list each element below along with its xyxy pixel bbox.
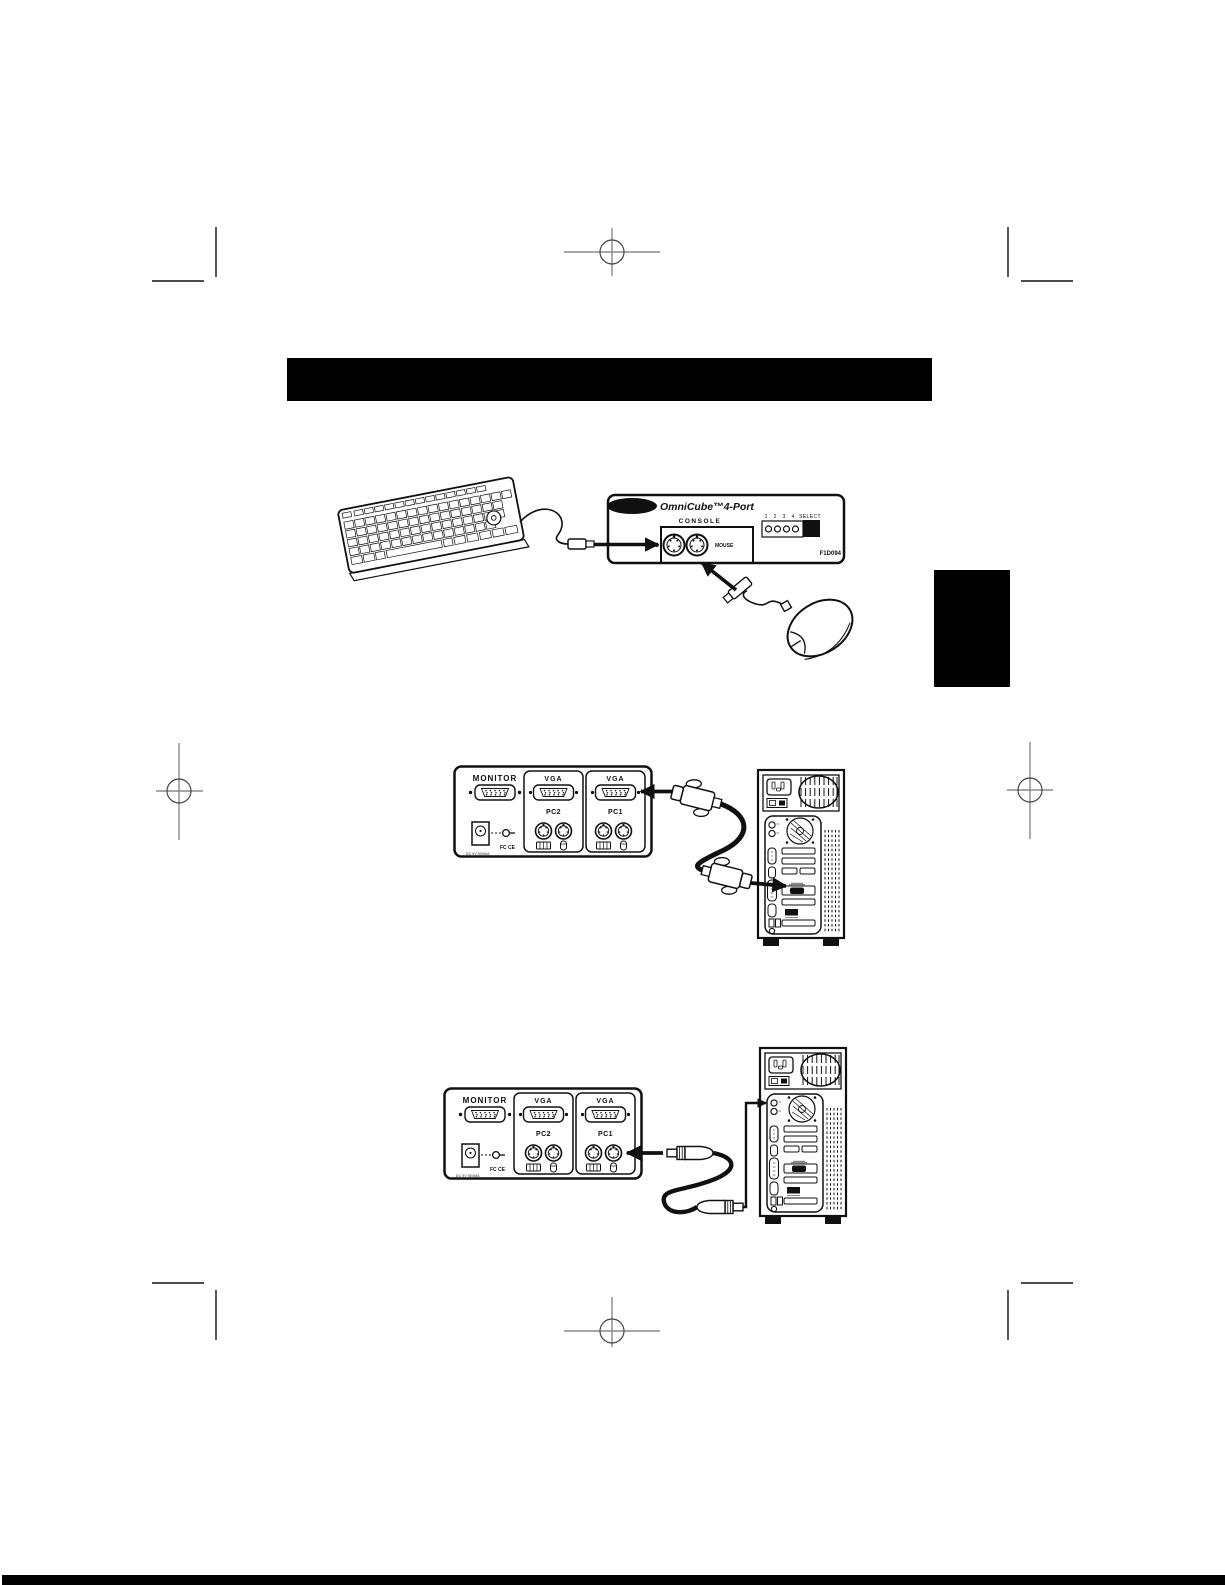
registration-target-left <box>156 743 203 840</box>
model-number: F1D094 <box>820 551 842 557</box>
omnicube-front-panel: BELKIN OmniCube™4-Port CONSOLE KYBD MOUS… <box>607 495 844 563</box>
console-label: CONSOLE <box>679 518 722 525</box>
keyboard-drawing <box>338 476 529 581</box>
crop-mark-bottom-right <box>1008 1283 1073 1340</box>
computer-tower <box>760 1048 846 1224</box>
page-bottom-rule <box>2 1575 1225 1585</box>
vga-connector-a <box>668 774 726 823</box>
ps2-connector-a <box>667 1147 713 1160</box>
select-button <box>803 520 820 537</box>
belkin-logo-text: BELKIN <box>616 505 647 511</box>
computer-tower <box>758 770 844 946</box>
crop-mark-top-left <box>152 227 216 281</box>
mouse-label: MOUSE <box>715 543 734 549</box>
kvm-rear-panel <box>445 1089 642 1179</box>
diagram-console-connections: BELKIN OmniCube™4-Port CONSOLE KYBD MOUS… <box>338 478 858 668</box>
mouse-connection-arrow <box>702 563 736 590</box>
registration-target-right <box>1007 742 1053 839</box>
led-label-3: 3 <box>783 514 786 520</box>
mouse-drawing <box>777 588 863 668</box>
chapter-side-tab <box>934 570 1010 687</box>
ps2-connector-b <box>697 1201 743 1214</box>
diagram-vga-connection <box>448 753 878 965</box>
mouse-cable <box>743 591 782 605</box>
led-label-1: 1 <box>765 514 768 520</box>
keyboard-cable-connector <box>568 539 594 549</box>
console-kybd-port <box>664 535 685 556</box>
registration-target-bottom <box>564 1297 660 1347</box>
keyboard-cable <box>520 509 568 544</box>
crop-mark-bottom-left <box>152 1283 216 1340</box>
diagram-ps2-connection <box>433 1033 873 1251</box>
select-label: SELECT <box>799 514 821 520</box>
registration-target-top <box>564 228 660 276</box>
led-label-4: 4 <box>792 514 795 520</box>
crop-mark-top-right <box>1008 227 1073 281</box>
section-header-bar <box>287 358 932 401</box>
manual-page: MONITOR FC CE DC 9V 500MA <box>0 0 1225 1585</box>
product-name: OmniCube™4-Port <box>660 501 754 513</box>
console-mouse-port <box>687 535 708 556</box>
kvm-rear-panel <box>455 767 652 857</box>
led-label-2: 2 <box>774 514 777 520</box>
